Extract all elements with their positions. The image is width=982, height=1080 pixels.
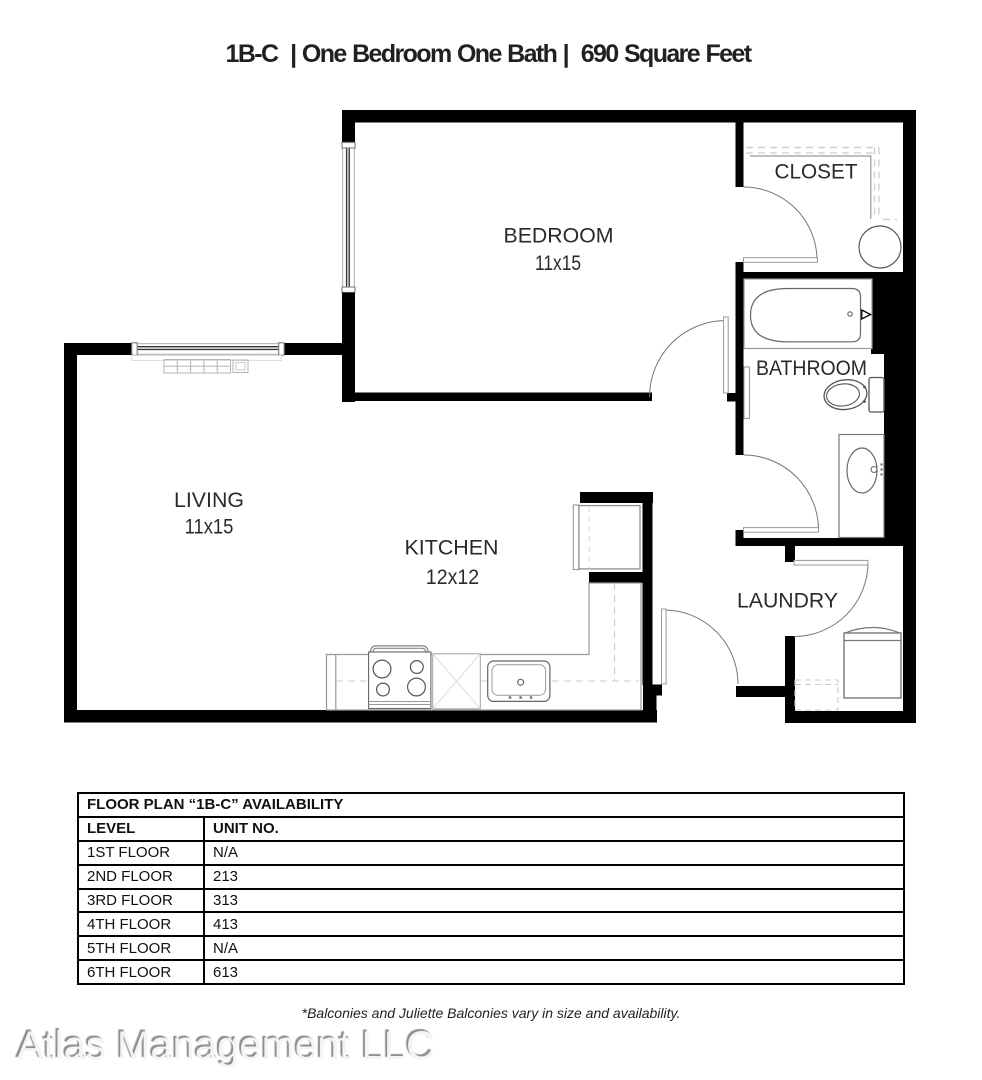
svg-text:LIVING: LIVING [174, 488, 244, 512]
svg-text:CLOSET: CLOSET [775, 160, 858, 184]
svg-text:11x15: 11x15 [185, 515, 234, 539]
svg-text:BEDROOM: BEDROOM [504, 224, 614, 248]
svg-text:12x12: 12x12 [426, 565, 479, 589]
svg-text:11x15: 11x15 [535, 251, 581, 275]
svg-text:BATHROOM: BATHROOM [756, 356, 867, 380]
svg-text:KITCHEN: KITCHEN [405, 536, 499, 560]
svg-text:LAUNDRY: LAUNDRY [737, 589, 838, 613]
